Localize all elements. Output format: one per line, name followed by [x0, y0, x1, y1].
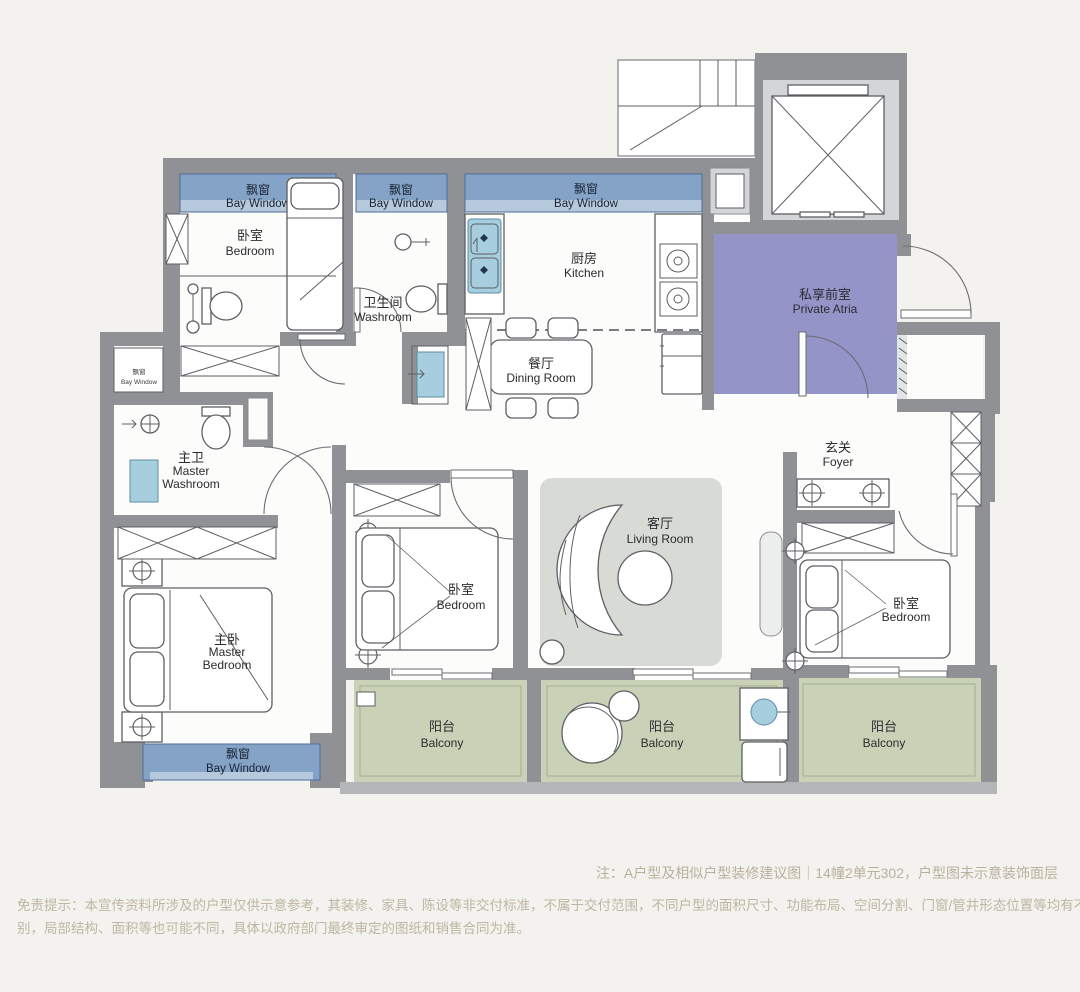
- label-private-atria-zh: 私享前室: [799, 287, 851, 302]
- hall-panel: [760, 532, 782, 636]
- label-dining-en: Dining Room: [506, 371, 575, 385]
- label-foyer-zh: 玄关: [825, 440, 851, 455]
- stair-door: [710, 168, 750, 214]
- label-balcony-center-zh: 阳台: [649, 719, 675, 734]
- label-bedroom-right-zh: 卧室: [893, 596, 919, 611]
- bay-window-left-small: 飘窗 Bay Window: [114, 348, 163, 392]
- label-bay-master-zh: 飘窗: [226, 747, 250, 761]
- label-washroom-en: Washroom: [354, 310, 412, 324]
- plan-note: 注：A户型及相似户型装修建议图｜14幢2单元302，户型图未示意装饰面层: [596, 865, 1058, 881]
- disclaimer-line2: 别，局部结构、面积等也可能不同，具体以政府部门最终审定的图纸和销售合同为准。: [17, 920, 530, 936]
- label-master-bedroom-en2: Bedroom: [203, 658, 252, 672]
- label-master-washroom-en1: Master: [173, 464, 210, 478]
- laundry-cabinet: [740, 688, 791, 782]
- bed-top-left: [287, 178, 343, 330]
- floor-plan-drawing: 飘窗 Bay Window 飘窗 Bay Window 飘窗 Bay Windo…: [0, 0, 1080, 992]
- label-dining-zh: 餐厅: [528, 356, 554, 371]
- label-washroom-zh: 卫生间: [363, 295, 402, 310]
- disclaimer-line1: 免责提示：本宣传资料所涉及的户型仅供示意参考，其装修、家具、陈设等非交付标准，不…: [17, 897, 1080, 914]
- stairwell: [618, 60, 755, 156]
- label-balcony-right-zh: 阳台: [871, 719, 897, 734]
- label-bay-kitchen-zh: 飘窗: [574, 182, 598, 196]
- bay-window-master: 飘窗 Bay Window: [143, 744, 320, 780]
- label-kitchen-en: Kitchen: [564, 266, 604, 280]
- label-bay-top-left-en: Bay Window: [226, 198, 291, 210]
- label-foyer-en: Foyer: [823, 455, 854, 469]
- label-bay-left-small-zh: 飘窗: [133, 367, 146, 376]
- label-bay-top-left-zh: 飘窗: [246, 183, 270, 197]
- label-balcony-right-en: Balcony: [863, 736, 906, 750]
- floor-plan-page: 飘窗 Bay Window 飘窗 Bay Window 飘窗 Bay Windo…: [0, 0, 1080, 992]
- label-kitchen-zh: 厨房: [571, 251, 597, 266]
- label-bay-kitchen-en: Bay Window: [554, 198, 619, 210]
- fridge: [660, 334, 702, 394]
- label-bay-top-middle-en: Bay Window: [369, 198, 434, 210]
- label-bedroom-middle-en: Bedroom: [437, 598, 486, 612]
- label-master-bedroom-en1: Master: [209, 645, 246, 659]
- label-bedroom-top-left-en: Bedroom: [226, 244, 275, 258]
- bay-window-top-middle: 飘窗 Bay Window: [356, 174, 447, 212]
- label-master-washroom-en2: Washroom: [162, 477, 220, 491]
- label-balcony-left-zh: 阳台: [429, 719, 455, 734]
- label-living-en: Living Room: [627, 532, 694, 546]
- label-bedroom-middle-zh: 卧室: [448, 582, 474, 597]
- entry-door-leaf: [901, 310, 971, 318]
- label-balcony-left-en: Balcony: [421, 736, 464, 750]
- label-balcony-center-en: Balcony: [641, 736, 684, 750]
- kitchen-stove: [655, 214, 702, 332]
- label-bedroom-top-left-zh: 卧室: [237, 228, 263, 243]
- label-bedroom-right-en: Bedroom: [882, 610, 931, 624]
- label-master-washroom-zh: 主卫: [178, 450, 204, 465]
- kitchen-counter-sink: [465, 214, 504, 314]
- round-table: [618, 551, 672, 605]
- label-private-atria-en: Private Atria: [793, 302, 858, 316]
- label-bay-left-small-en: Bay Window: [121, 379, 157, 386]
- label-bay-top-middle-zh: 飘窗: [389, 183, 413, 197]
- label-living-zh: 客厅: [647, 516, 673, 531]
- duct-shaft: [951, 412, 981, 506]
- foyer-cabinet: [797, 479, 889, 507]
- label-bay-master-en: Bay Window: [206, 763, 271, 775]
- bay-window-kitchen: 飘窗 Bay Window: [465, 174, 702, 212]
